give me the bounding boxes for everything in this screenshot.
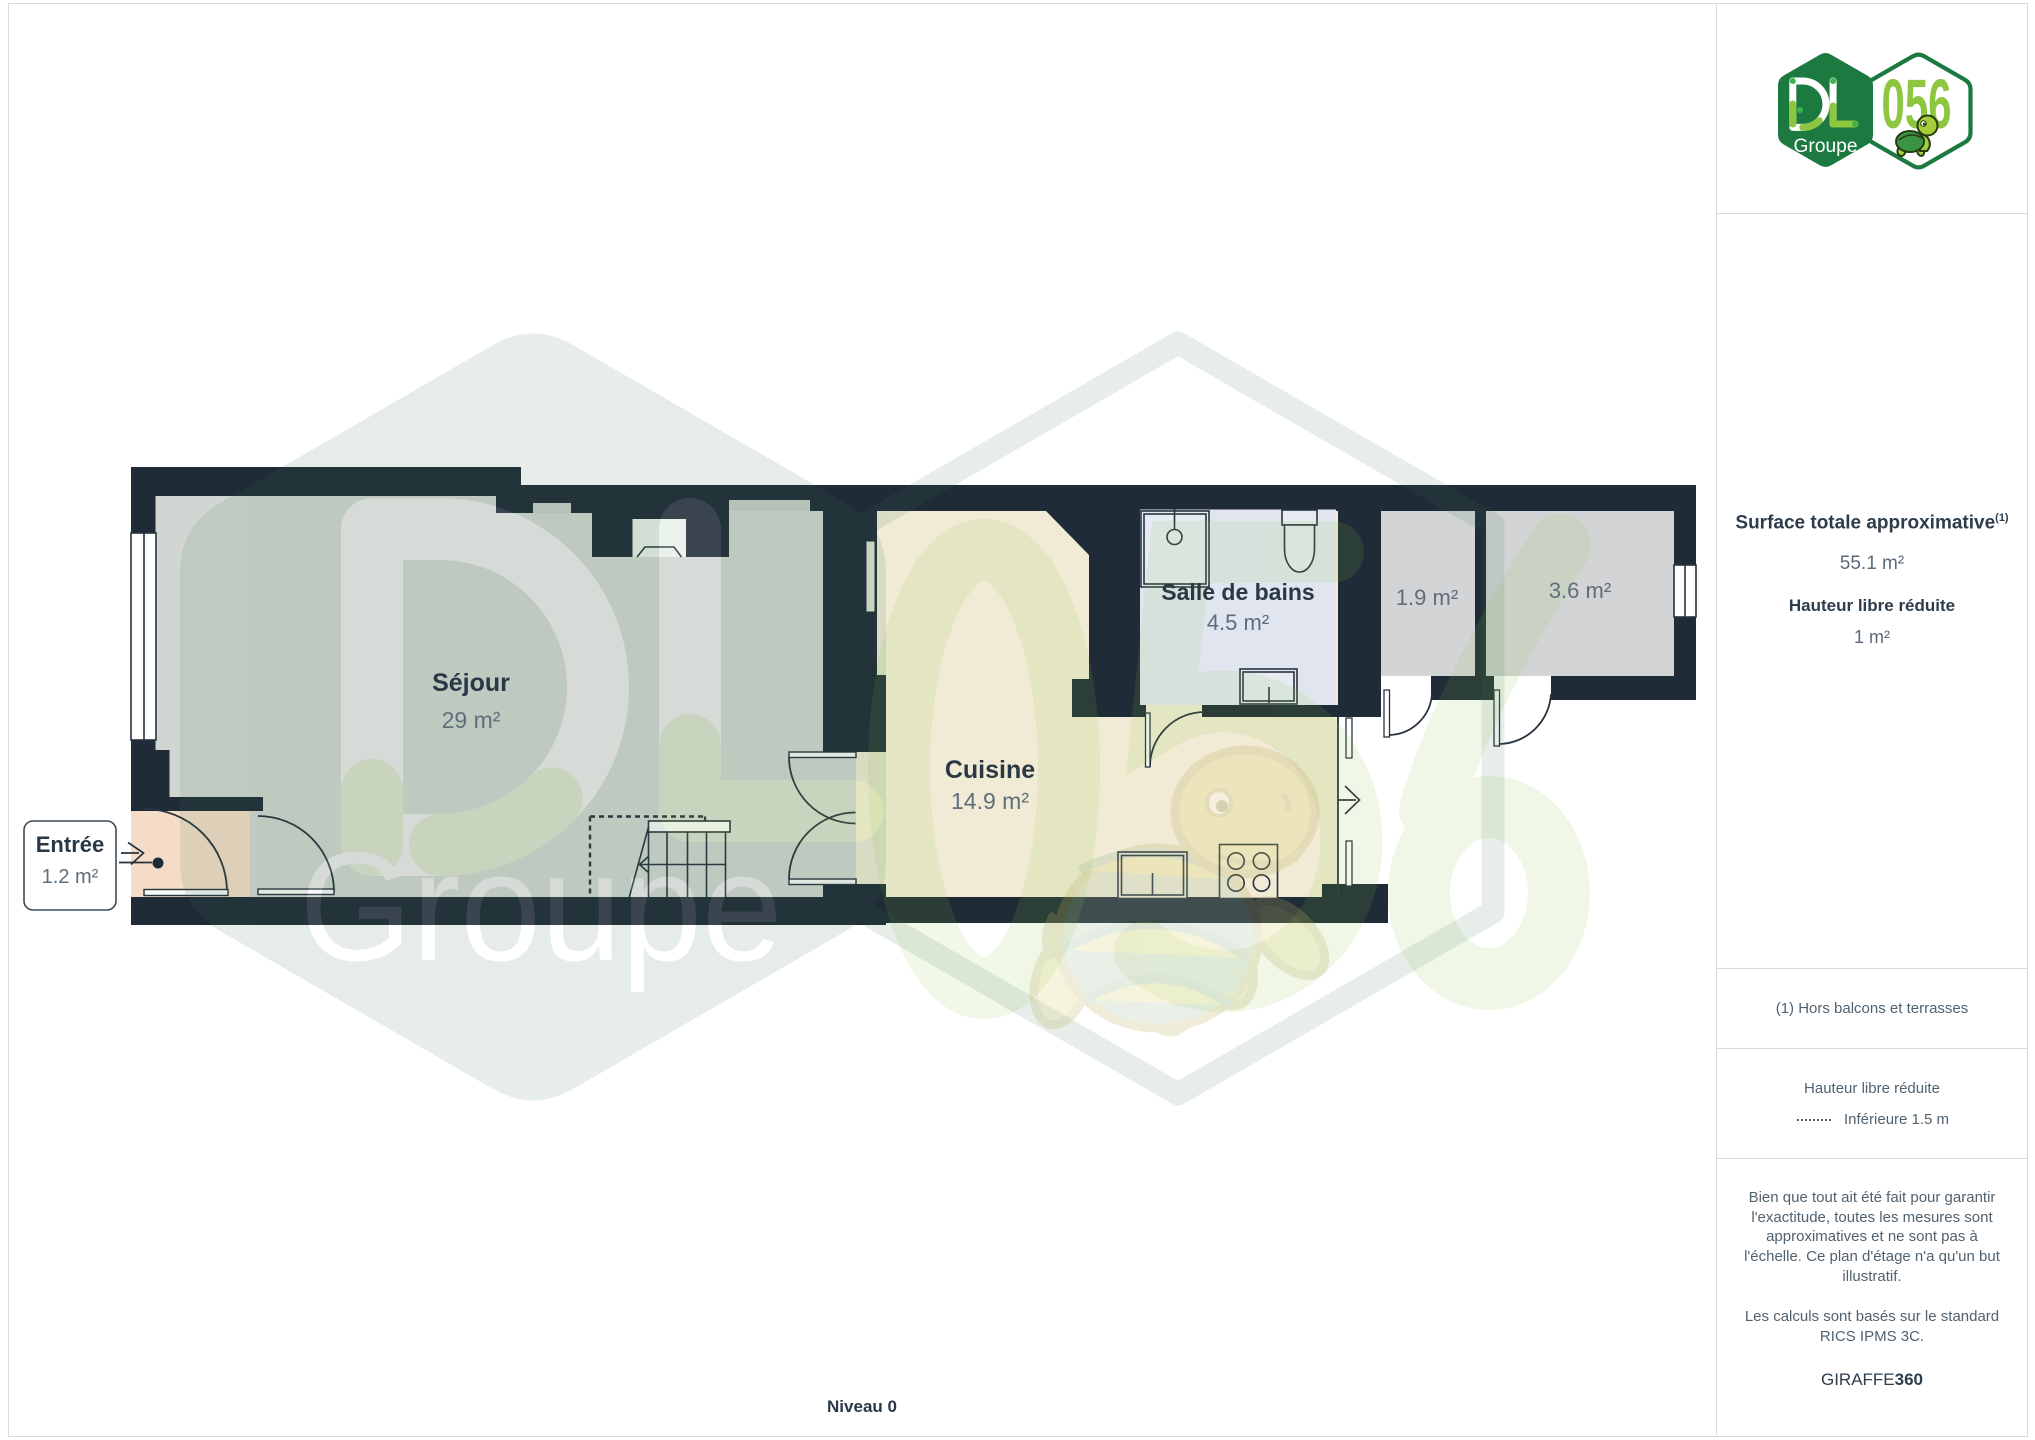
svg-text:3.6 m²: 3.6 m² [1549,578,1611,603]
svg-text:Niveau 0: Niveau 0 [827,1397,897,1416]
svg-text:1.2 m²: 1.2 m² [42,866,99,888]
svg-text:29 m²: 29 m² [442,707,501,733]
svg-text:4.5 m²: 4.5 m² [1207,610,1269,635]
svg-text:Cuisine: Cuisine [945,756,1035,784]
svg-text:Salle de bains: Salle de bains [1161,579,1314,605]
svg-text:1.9 m²: 1.9 m² [1396,585,1458,610]
svg-text:14.9 m²: 14.9 m² [951,788,1029,814]
svg-text:Groupe: Groupe [300,820,783,993]
svg-text:Groupe: Groupe [1794,136,1858,157]
svg-text:Entrée: Entrée [36,832,104,857]
svg-text:Séjour: Séjour [432,669,510,697]
